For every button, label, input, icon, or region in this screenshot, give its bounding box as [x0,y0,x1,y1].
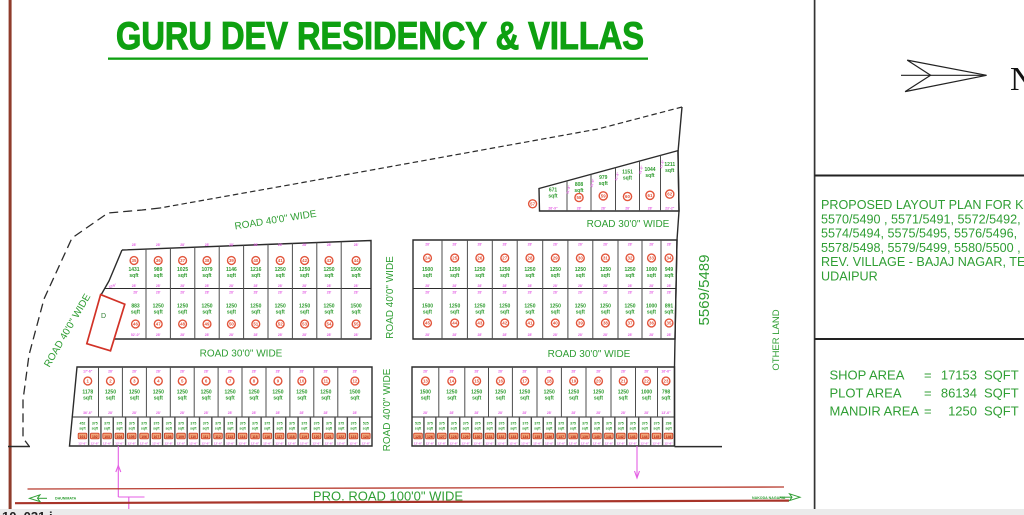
svg-text:sqft: sqft [225,396,235,402]
svg-text:28': 28' [553,291,558,295]
svg-text:42: 42 [502,321,507,326]
svg-text:sqft: sqft [462,426,469,430]
svg-text:143: 143 [630,435,636,439]
svg-text:31: 31 [603,256,608,261]
svg-text:13: 13 [423,379,428,384]
svg-text:sqft: sqft [276,310,286,316]
svg-text:sqft: sqft [439,426,446,430]
svg-text:sqft: sqft [324,273,334,279]
svg-text:PROPOSED LAYOUT PLAN FOR KH: PROPOSED LAYOUT PLAN FOR KH [821,198,1024,212]
svg-text:108: 108 [166,435,172,439]
svg-text:375: 375 [264,421,270,425]
svg-text:375: 375 [606,421,612,425]
svg-text:375: 375 [630,421,636,425]
svg-text:28': 28' [578,291,583,295]
svg-text:35: 35 [132,258,137,263]
svg-text:86134: 86134 [941,386,977,401]
svg-text:12'-6": 12'-6" [569,442,578,446]
svg-text:sqft: sqft [472,396,482,402]
svg-text:ROAD 30'0" WIDE: ROAD 30'0" WIDE [200,349,283,360]
svg-text:sqft: sqft [264,426,271,430]
svg-text:sqft: sqft [496,396,506,402]
svg-text:28': 28' [452,284,457,288]
svg-text:20: 20 [596,379,601,384]
svg-text:138: 138 [570,435,576,439]
svg-text:12: 12 [352,379,357,384]
svg-text:sqft: sqft [300,310,310,316]
svg-text:375: 375 [510,421,516,425]
svg-text:sqft: sqft [321,396,331,402]
svg-text:28': 28' [667,242,672,246]
svg-text:28': 28' [254,284,259,288]
svg-text:sqft: sqft [79,426,86,430]
svg-text:5569/5489: 5569/5489 [696,255,713,326]
svg-text:51: 51 [253,322,258,327]
svg-text:49: 49 [205,322,210,327]
svg-text:28': 28' [354,333,359,337]
svg-text:375: 375 [427,421,433,425]
svg-text:17: 17 [522,379,527,384]
svg-text:12'-6": 12'-6" [664,442,673,446]
svg-text:sqft: sqft [202,273,212,279]
svg-text:sqft: sqft [601,310,611,316]
svg-text:28': 28' [649,284,654,288]
svg-text:375: 375 [129,421,135,425]
svg-text:28': 28' [156,291,161,295]
svg-text:sqft: sqft [415,426,422,430]
svg-text:sqft: sqft [239,426,246,430]
svg-text:146: 146 [666,435,672,439]
svg-text:sqft: sqft [427,426,434,430]
svg-text:375: 375 [618,421,624,425]
svg-text:sqft: sqft [131,310,141,316]
svg-text:sqft: sqft [569,396,579,402]
svg-text:sqft: sqft [576,310,586,316]
svg-text:375: 375 [141,421,147,425]
svg-text:sqft: sqft [178,396,188,402]
svg-text:12'-6": 12'-6" [349,442,358,446]
svg-text:12'-6": 12'-6" [201,442,210,446]
svg-text:sqft: sqft [423,273,433,279]
svg-text:sqft: sqft [326,426,333,430]
svg-text:55: 55 [354,322,359,327]
svg-text:375: 375 [314,421,320,425]
svg-text:375: 375 [351,421,357,425]
svg-text:28': 28' [353,369,358,373]
svg-text:sqft: sqft [594,426,601,430]
svg-text:40: 40 [253,258,258,263]
svg-text:28': 28' [302,291,307,295]
svg-text:28': 28' [452,291,457,295]
svg-text:28': 28' [302,333,307,337]
svg-text:28': 28' [528,242,533,246]
svg-text:12'-6": 12'-6" [312,442,321,446]
svg-text:sqft: sqft [423,310,433,316]
svg-text:35: 35 [667,321,672,326]
svg-text:28': 28' [327,284,332,288]
svg-text:D: D [101,313,106,320]
svg-text:40: 40 [553,321,558,326]
svg-text:107: 107 [154,435,160,439]
svg-text:145: 145 [654,435,660,439]
svg-text:39: 39 [578,321,583,326]
svg-text:sqft: sqft [251,310,261,316]
svg-text:19: 19 [571,379,576,384]
svg-text:12'-6": 12'-6" [251,442,260,446]
svg-text:112: 112 [215,435,221,439]
svg-text:126: 126 [427,435,433,439]
svg-text:sqft: sqft [647,310,657,316]
svg-text:28': 28' [528,333,533,337]
svg-text:375: 375 [499,421,505,425]
svg-text:123: 123 [351,435,357,439]
svg-text:28': 28' [644,411,649,415]
svg-text:12'-6": 12'-6" [115,442,124,446]
svg-text:28': 28' [452,242,457,246]
svg-text:sqft: sqft [324,310,334,316]
svg-text:sqft: sqft [338,426,345,430]
svg-text:sqft: sqft [625,273,635,279]
svg-text:5570/5490 , 5571/5491, 5572/54: 5570/5490 , 5571/5491, 5572/5492, [821,212,1021,226]
svg-text:22: 22 [644,379,649,384]
svg-text:28': 28' [276,369,281,373]
svg-text:28': 28' [502,242,507,246]
svg-text:115: 115 [252,435,258,439]
svg-text:18: 18 [547,379,552,384]
svg-text:sqft: sqft [548,194,558,200]
svg-text:sqft: sqft [606,426,613,430]
svg-text:12'-6": 12'-6" [300,442,309,446]
svg-text:28': 28' [667,291,672,295]
svg-text:375: 375 [594,421,600,425]
svg-text:43: 43 [477,321,482,326]
svg-text:28': 28' [603,242,608,246]
svg-text:=: = [924,386,932,401]
svg-text:127: 127 [439,435,445,439]
svg-text:12'-6": 12'-6" [177,442,186,446]
svg-text:sqft: sqft [625,310,635,316]
svg-text:375: 375 [227,421,233,425]
svg-text:26'-9": 26'-9" [548,207,558,211]
svg-text:38: 38 [205,258,210,263]
svg-text:28': 28' [132,284,137,288]
svg-text:23'-2": 23'-2" [665,207,675,211]
svg-text:142: 142 [618,435,624,439]
svg-text:5578/5498, 5579/5499, 5580/550: 5578/5498, 5579/5499, 5580/5500 , [821,241,1021,255]
svg-text:28': 28' [667,284,672,288]
svg-text:sqft: sqft [630,426,637,430]
svg-text:375: 375 [166,421,172,425]
svg-text:sqft: sqft [129,273,139,279]
svg-text:12'-6": 12'-6" [652,442,661,446]
svg-text:28': 28' [354,243,359,247]
svg-text:44: 44 [354,258,359,263]
svg-text:375: 375 [252,421,258,425]
svg-text:28': 28' [628,333,633,337]
svg-text:28': 28' [354,291,359,295]
svg-text:48: 48 [180,322,185,327]
svg-text:60: 60 [625,194,630,199]
svg-text:28': 28' [132,369,137,373]
svg-text:44: 44 [452,321,457,326]
svg-text:28': 28' [578,284,583,288]
svg-text:114: 114 [240,435,246,439]
svg-text:28': 28' [478,242,483,246]
svg-text:12'-6": 12'-6" [497,442,506,446]
svg-text:16'-6": 16'-6" [661,369,671,373]
svg-text:28': 28' [648,207,653,211]
svg-text:37: 37 [628,321,633,326]
svg-text:375: 375 [463,421,469,425]
svg-text:sqft: sqft [249,396,259,402]
svg-text:28': 28' [571,369,576,373]
svg-text:28': 28' [553,284,558,288]
svg-text:113: 113 [228,435,234,439]
svg-text:375: 375 [439,421,445,425]
svg-text:17153: 17153 [941,368,977,383]
svg-text:12'-6": 12'-6" [165,442,174,446]
svg-text:sqft: sqft [130,396,140,402]
svg-text:37: 37 [180,258,185,263]
svg-text:57: 57 [530,201,535,206]
svg-text:28': 28' [300,369,305,373]
svg-text:62: 62 [667,192,672,197]
svg-text:137: 137 [558,435,564,439]
svg-text:28': 28' [603,284,608,288]
svg-text:sqft: sqft [594,396,604,402]
svg-text:375: 375 [104,421,110,425]
svg-text:375: 375 [190,421,196,425]
svg-text:28': 28' [502,284,507,288]
svg-text:12'-6": 12'-6" [605,442,614,446]
svg-text:375: 375 [570,421,576,425]
svg-text:33: 33 [649,256,654,261]
svg-text:sqft: sqft [599,181,609,187]
svg-text:28': 28' [644,369,649,373]
svg-text:MANDIR AREA: MANDIR AREA [830,404,920,419]
svg-text:102: 102 [92,435,98,439]
svg-text:sqft: sqft [510,426,517,430]
svg-text:32: 32 [628,256,633,261]
svg-text:28': 28' [547,369,552,373]
svg-text:58: 58 [577,195,582,200]
svg-text:10. 031 i: 10. 031 i [2,509,53,515]
svg-text:SQFT: SQFT [984,368,1019,383]
svg-text:375: 375 [654,421,660,425]
svg-text:12'-6": 12'-6" [128,442,137,446]
svg-text:sqft: sqft [500,310,510,316]
svg-text:52: 52 [278,322,283,327]
svg-text:sqft: sqft [558,426,565,430]
svg-text:sqft: sqft [190,426,197,430]
svg-text:28': 28' [156,284,161,288]
svg-text:NAKODA NAGARIA: NAKODA NAGARIA [752,496,786,500]
svg-text:28': 28' [229,333,234,337]
svg-text:28': 28' [353,411,358,415]
svg-text:PRO. ROAD 100'0" WIDE: PRO. ROAD 100'0" WIDE [313,489,463,504]
svg-text:28': 28' [156,333,161,337]
svg-text:12'-6": 12'-6" [238,442,247,446]
svg-text:452: 452 [80,421,86,425]
svg-text:sqft: sqft [129,426,136,430]
svg-text:30: 30 [578,256,583,261]
svg-text:25: 25 [452,256,457,261]
svg-text:sqft: sqft [500,273,510,279]
svg-text:OTHER LAND: OTHER LAND [771,309,782,370]
svg-text:12'-6": 12'-6" [617,442,626,446]
svg-text:36: 36 [156,258,161,263]
svg-text:28': 28' [528,291,533,295]
svg-text:GURU DEV RESIDENCY & VILLAS: GURU DEV RESIDENCY & VILLAS [116,15,644,58]
svg-text:28': 28' [522,369,527,373]
svg-text:54: 54 [327,322,332,327]
svg-text:12'-6": 12'-6" [263,442,272,446]
svg-text:sqft: sqft [352,273,362,279]
svg-text:128: 128 [451,435,457,439]
svg-text:=: = [924,368,932,383]
svg-text:sqft: sqft [313,426,320,430]
svg-text:110: 110 [191,435,197,439]
svg-text:28': 28' [423,411,428,415]
svg-text:28': 28' [324,411,329,415]
svg-text:sqft: sqft [83,396,93,402]
svg-text:28': 28' [601,207,606,211]
svg-text:sqft: sqft [451,426,458,430]
svg-text:28': 28' [278,243,283,247]
svg-text:28': 28' [452,333,457,337]
svg-text:28': 28' [327,291,332,295]
svg-text:28': 28' [108,369,113,373]
svg-text:28': 28' [180,411,185,415]
svg-text:UDAIPUR: UDAIPUR [821,270,878,284]
svg-text:sqft: sqft [350,396,360,402]
svg-text:12'-6": 12'-6" [640,442,649,446]
svg-text:12'-6": 12'-6" [226,442,235,446]
svg-text:28': 28' [474,411,479,415]
svg-text:29: 29 [553,256,558,261]
svg-text:N: N [1010,61,1024,98]
svg-text:28': 28' [205,243,210,247]
svg-text:28': 28' [228,411,233,415]
svg-text:28': 28' [628,284,633,288]
svg-text:12'-6": 12'-6" [545,442,554,446]
svg-text:1250: 1250 [948,404,977,419]
svg-text:12'-6": 12'-6" [214,442,223,446]
svg-text:sqft: sqft [289,426,296,430]
svg-text:375: 375 [178,421,184,425]
svg-text:sqft: sqft [116,426,123,430]
svg-text:sqft: sqft [215,426,222,430]
svg-text:375: 375 [642,421,648,425]
svg-text:139: 139 [582,435,588,439]
svg-text:sqft: sqft [178,426,185,430]
svg-text:28': 28' [302,284,307,288]
svg-text:REV. VILLAGE - BAJAJ NAGAR, TE: REV. VILLAGE - BAJAJ NAGAR, TEH [821,255,1024,269]
svg-text:28': 28' [498,369,503,373]
svg-text:10: 10 [299,379,304,384]
svg-text:375: 375 [301,421,307,425]
svg-text:14: 14 [449,379,454,384]
svg-text:28': 28' [502,291,507,295]
svg-text:375: 375 [92,421,98,425]
svg-text:525: 525 [415,421,421,425]
svg-text:28': 28' [474,369,479,373]
svg-text:28': 28' [132,411,137,415]
svg-text:28': 28' [423,369,428,373]
svg-text:sqft: sqft [178,310,188,316]
svg-text:12'-6": 12'-6" [629,442,638,446]
svg-text:12'-6": 12'-6" [461,442,470,446]
svg-text:28': 28' [354,284,359,288]
svg-text:sqft: sqft [545,396,555,402]
svg-text:sqft: sqft [551,310,561,316]
svg-text:28': 28' [522,411,527,415]
svg-text:28': 28' [478,291,483,295]
svg-text:28: 28 [528,256,533,261]
svg-text:sqft: sqft [551,273,561,279]
svg-text:375: 375 [153,421,159,425]
svg-text:28': 28' [205,291,210,295]
svg-text:28': 28' [628,242,633,246]
svg-text:28': 28' [425,333,430,337]
svg-text:28': 28' [596,369,601,373]
svg-text:sqft: sqft [475,273,485,279]
svg-text:101: 101 [80,435,86,439]
svg-text:28': 28' [578,242,583,246]
svg-text:28': 28' [478,284,483,288]
svg-text:111: 111 [203,435,208,439]
svg-text:sqft: sqft [498,426,505,430]
svg-text:28': 28' [278,284,283,288]
svg-text:28': 28' [450,411,455,415]
svg-text:sqft: sqft [153,426,160,430]
svg-text:28': 28' [596,411,601,415]
svg-text:28': 28' [327,243,332,247]
svg-text:109: 109 [178,435,184,439]
svg-text:SQFT: SQFT [984,404,1019,419]
svg-text:28': 28' [498,411,503,415]
svg-text:39: 39 [229,258,234,263]
svg-text:375: 375 [534,421,540,425]
svg-text:ROAD 30'0" WIDE: ROAD 30'0" WIDE [587,219,670,230]
svg-text:PLOT AREA: PLOT AREA [830,386,902,401]
svg-text:28': 28' [621,411,626,415]
svg-text:375: 375 [451,421,457,425]
svg-text:28': 28' [156,411,161,415]
svg-text:sqft: sqft [450,273,460,279]
svg-text:28': 28' [204,369,209,373]
svg-text:ROAD 40'0" WIDE: ROAD 40'0" WIDE [382,368,393,451]
svg-text:sqft: sqft [576,273,586,279]
svg-text:36'-6": 36'-6" [83,411,93,415]
svg-text:375: 375 [582,421,588,425]
svg-text:28': 28' [628,291,633,295]
svg-text:104: 104 [117,435,123,439]
svg-text:136: 136 [546,435,552,439]
svg-text:5574/5494, 5575/5495, 5576/549: 5574/5494, 5575/5495, 5576/5496, [821,227,1017,241]
svg-text:52'-0": 52'-0" [131,333,141,337]
svg-text:sqft: sqft [202,426,209,430]
svg-text:134: 134 [523,435,529,439]
svg-text:61: 61 [648,193,653,198]
svg-text:ROAD 40'0" WIDE: ROAD 40'0" WIDE [385,256,396,339]
svg-text:28': 28' [252,411,257,415]
svg-text:140: 140 [594,435,600,439]
svg-text:sqft: sqft [202,396,212,402]
svg-text:28': 28' [205,333,210,337]
svg-text:28': 28' [571,411,576,415]
svg-text:sqft: sqft [546,426,553,430]
